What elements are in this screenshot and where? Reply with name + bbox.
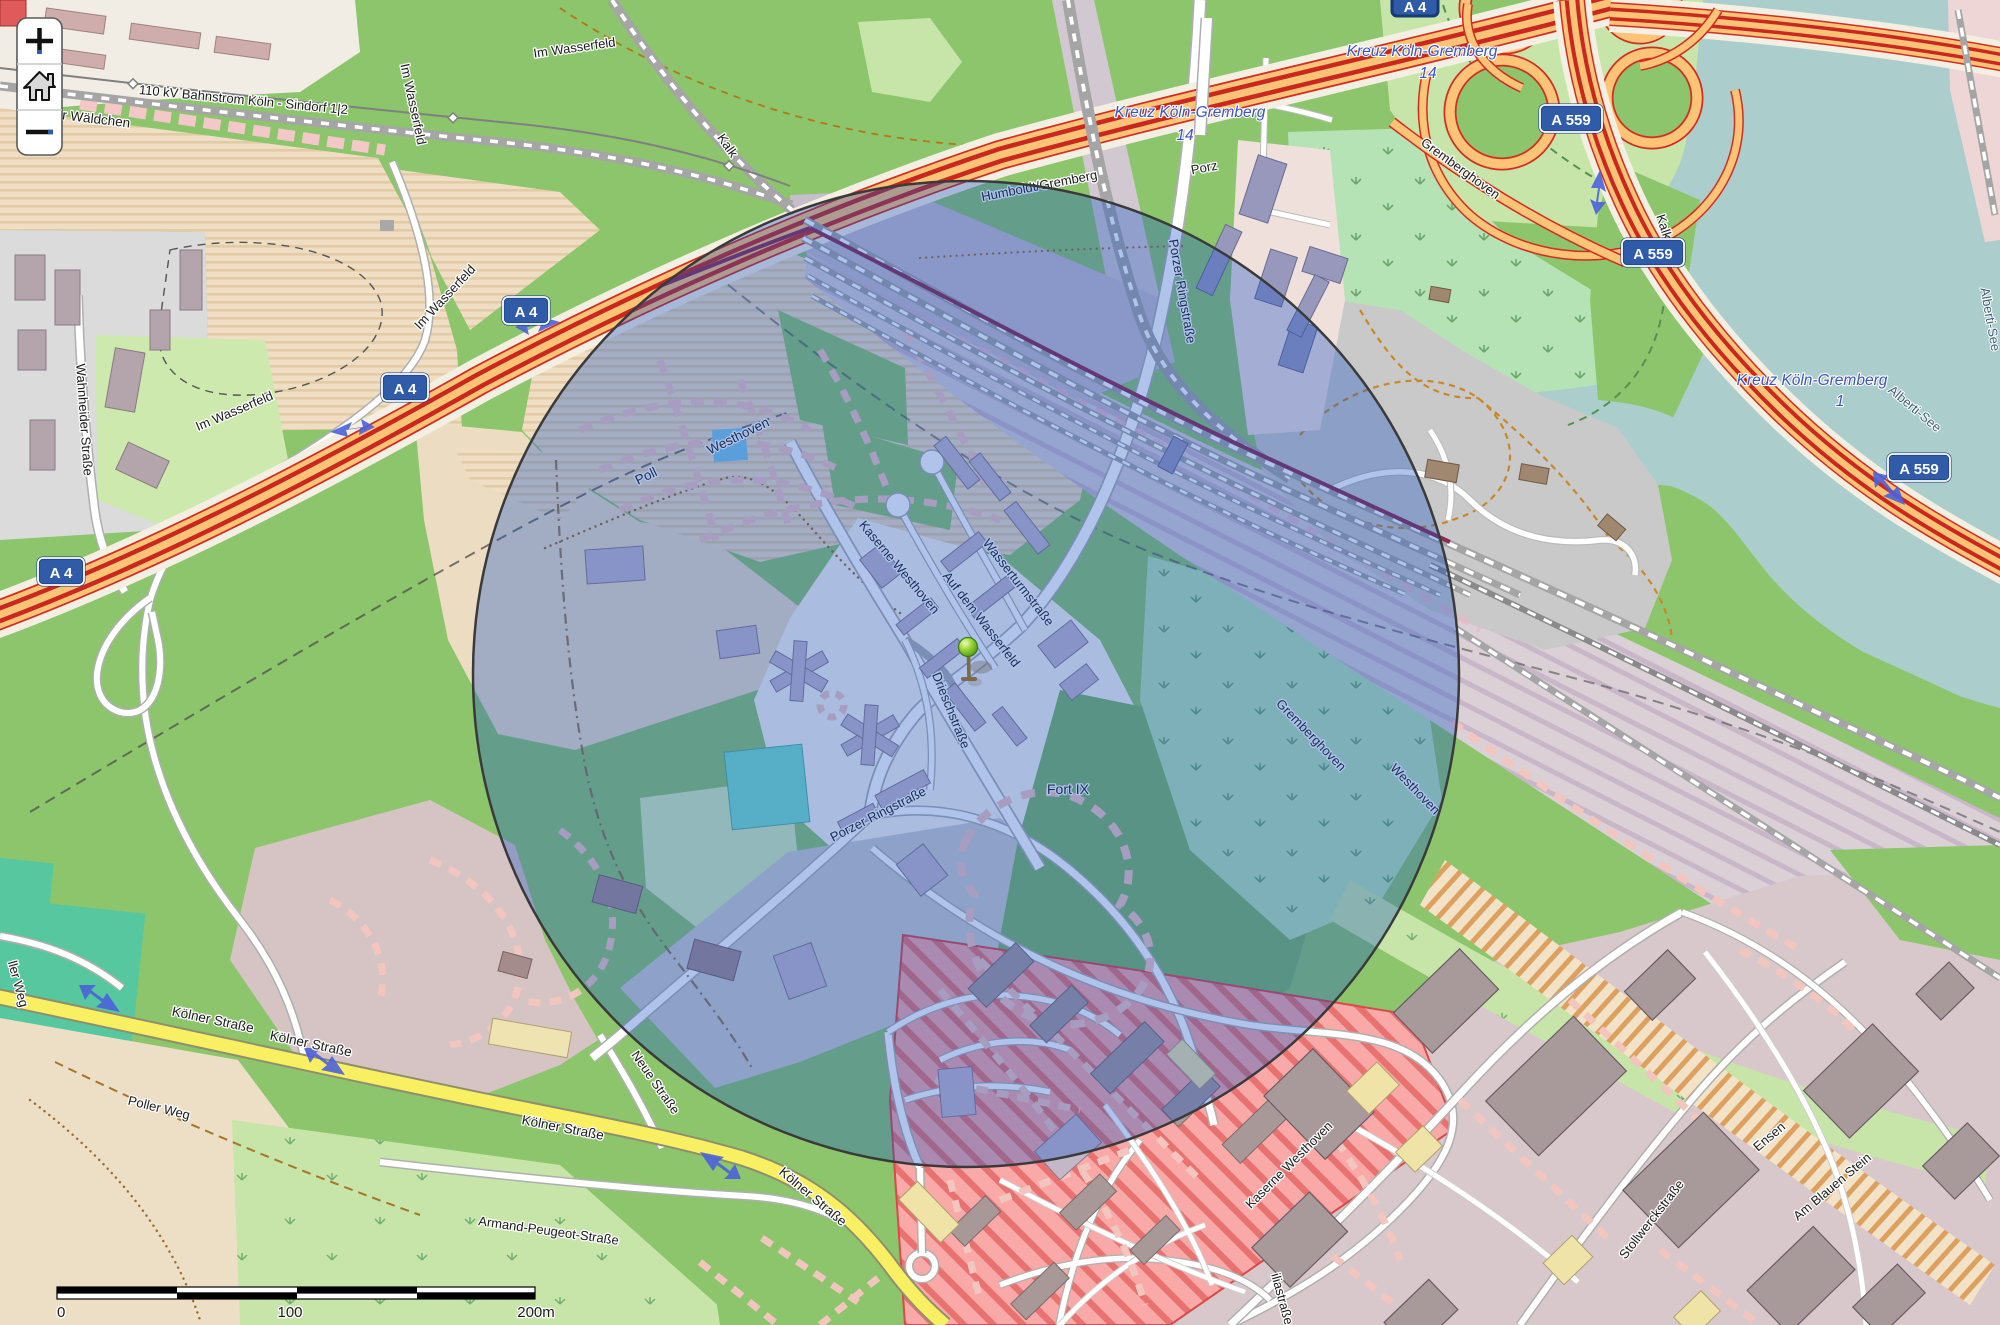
svg-text:A 559: A 559: [1899, 461, 1938, 478]
svg-text:A 4: A 4: [50, 565, 73, 582]
svg-text:14: 14: [1419, 65, 1437, 82]
svg-text:Kreuz Köln-Gremberg: Kreuz Köln-Gremberg: [1115, 104, 1266, 121]
svg-text:Kreuz Köln-Gremberg: Kreuz Köln-Gremberg: [1347, 43, 1498, 60]
svg-text:100: 100: [277, 1304, 302, 1321]
svg-text:200m: 200m: [517, 1304, 555, 1321]
svg-text:Kreuz Köln-Gremberg: Kreuz Köln-Gremberg: [1737, 372, 1888, 389]
svg-text:A 4: A 4: [515, 304, 538, 321]
svg-text:A 559: A 559: [1551, 112, 1590, 129]
svg-text:A 4: A 4: [394, 381, 417, 398]
svg-text:14: 14: [1176, 127, 1194, 144]
svg-text:1: 1: [1836, 393, 1845, 410]
svg-text:A 4: A 4: [1404, 0, 1427, 16]
svg-text:A 559: A 559: [1633, 246, 1672, 263]
svg-text:0: 0: [57, 1304, 65, 1321]
